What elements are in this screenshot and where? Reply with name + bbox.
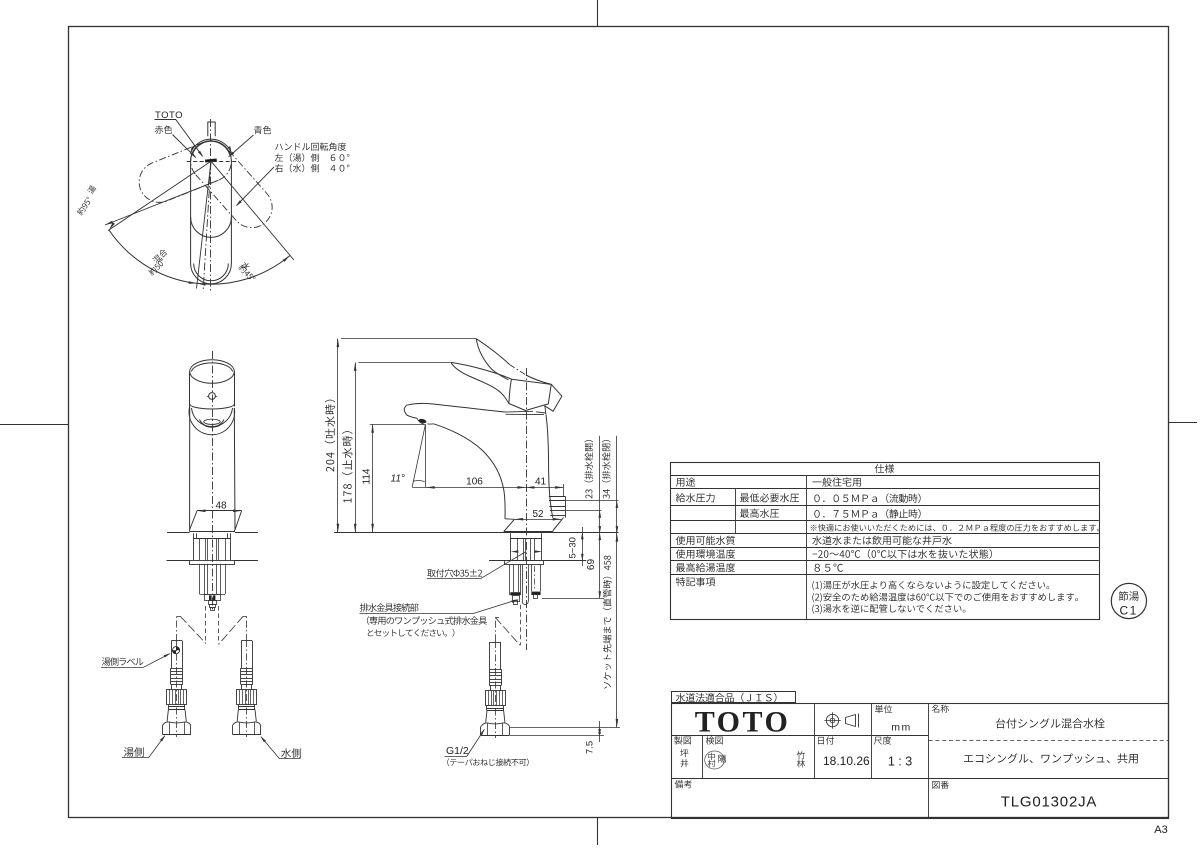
svg-text:5~30: 5~30 [567, 537, 578, 558]
svg-text:TLG01302JA: TLG01302JA [1001, 794, 1097, 811]
svg-text:48: 48 [215, 501, 227, 512]
svg-text:114: 114 [361, 468, 372, 484]
svg-text:69: 69 [586, 559, 597, 571]
svg-text:mm: mm [891, 722, 912, 734]
svg-text:106: 106 [466, 477, 483, 488]
svg-text:18.10.26: 18.10.26 [823, 754, 870, 768]
svg-text:A3: A3 [1154, 824, 1167, 836]
svg-text:52: 52 [532, 509, 544, 520]
svg-text:11°: 11° [391, 474, 405, 485]
svg-text:41: 41 [535, 477, 547, 488]
svg-text:G1/2: G1/2 [446, 745, 469, 757]
svg-text:C1: C1 [1120, 604, 1138, 618]
svg-text:1 : 3: 1 : 3 [888, 755, 912, 769]
svg-text:TOTO: TOTO [695, 706, 791, 739]
svg-text:7.5: 7.5 [585, 741, 596, 754]
